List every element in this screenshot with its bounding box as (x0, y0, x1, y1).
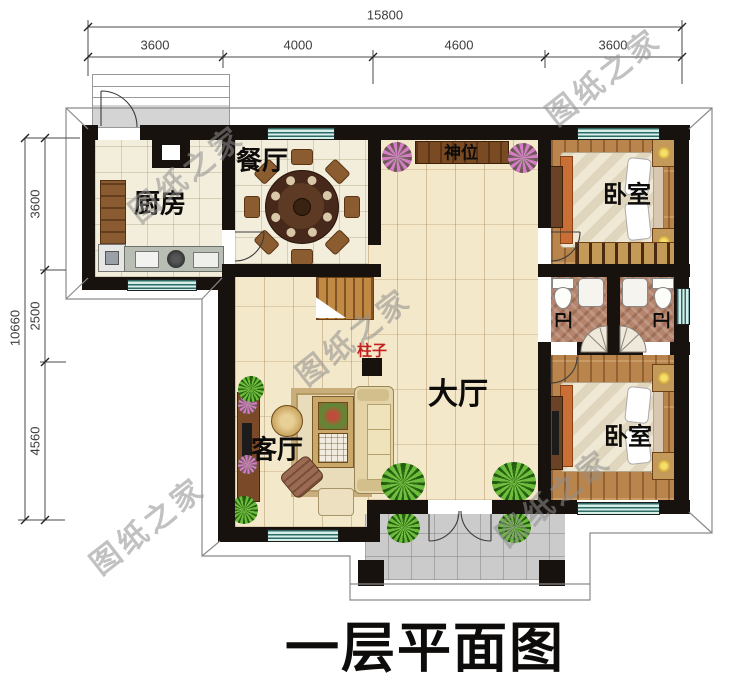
floor-plan-canvas: 15800 3600 4000 4600 3600 10660 3600 250… (0, 0, 750, 686)
bath-fan-doors (581, 326, 646, 352)
